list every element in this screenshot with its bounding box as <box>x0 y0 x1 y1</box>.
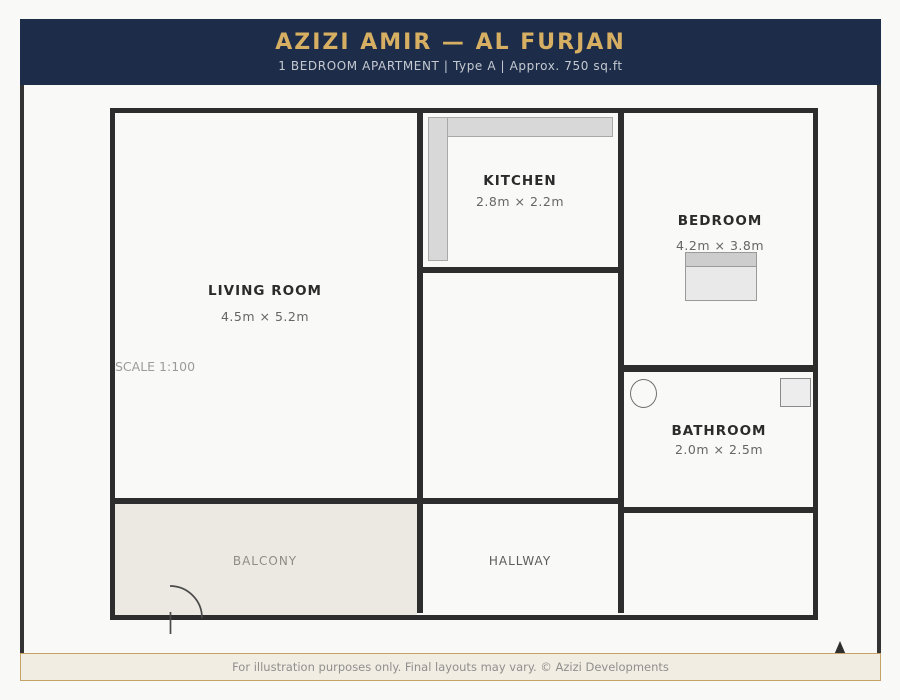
floor-plan-page: AZIZI AMIR — AL FURJAN 1 BEDROOM APARTME… <box>0 0 900 700</box>
balcony-label: BALCONY <box>233 554 297 568</box>
kitchen-counter-icon <box>447 117 613 137</box>
kitchen-counter-icon <box>428 117 448 261</box>
page-title: AZIZI AMIR — AL FURJAN <box>275 31 626 55</box>
outer-wall <box>110 108 818 620</box>
wall-bedroom-bottom <box>618 365 813 372</box>
washbasin-icon <box>780 378 811 407</box>
bathroom-label: BATHROOM <box>672 423 767 439</box>
footer-bar: For illustration purposes only. Final la… <box>20 653 881 681</box>
kitchen-label: KITCHEN <box>483 173 556 189</box>
wall-living-divider <box>417 113 423 613</box>
toilet-icon <box>630 379 657 408</box>
living-room-dimensions: 4.5m × 5.2m <box>221 309 309 324</box>
bathroom-dimensions: 2.0m × 2.5m <box>675 442 763 457</box>
living-room-label: LIVING ROOM <box>208 283 322 299</box>
header-bar: AZIZI AMIR — AL FURJAN 1 BEDROOM APARTME… <box>20 19 881 85</box>
bed-pillow-icon <box>686 253 756 267</box>
hallway-label: HALLWAY <box>489 554 551 568</box>
disclaimer-text: For illustration purposes only. Final la… <box>232 660 669 674</box>
bedroom-dimensions: 4.2m × 3.8m <box>676 238 764 253</box>
wall-bathroom-bottom <box>618 507 813 513</box>
door-swing-icon <box>155 578 215 640</box>
wall-balcony-top <box>115 498 624 504</box>
kitchen-dimensions: 2.8m × 2.2m <box>476 194 564 209</box>
bed-icon <box>685 252 757 301</box>
wall-kitchen-bottom <box>417 267 624 273</box>
page-subtitle: 1 BEDROOM APARTMENT | Type A | Approx. 7… <box>278 59 623 73</box>
bedroom-label: BEDROOM <box>678 213 763 229</box>
scale-label: SCALE 1:100 <box>115 359 195 374</box>
wall-right-divider <box>618 113 624 613</box>
